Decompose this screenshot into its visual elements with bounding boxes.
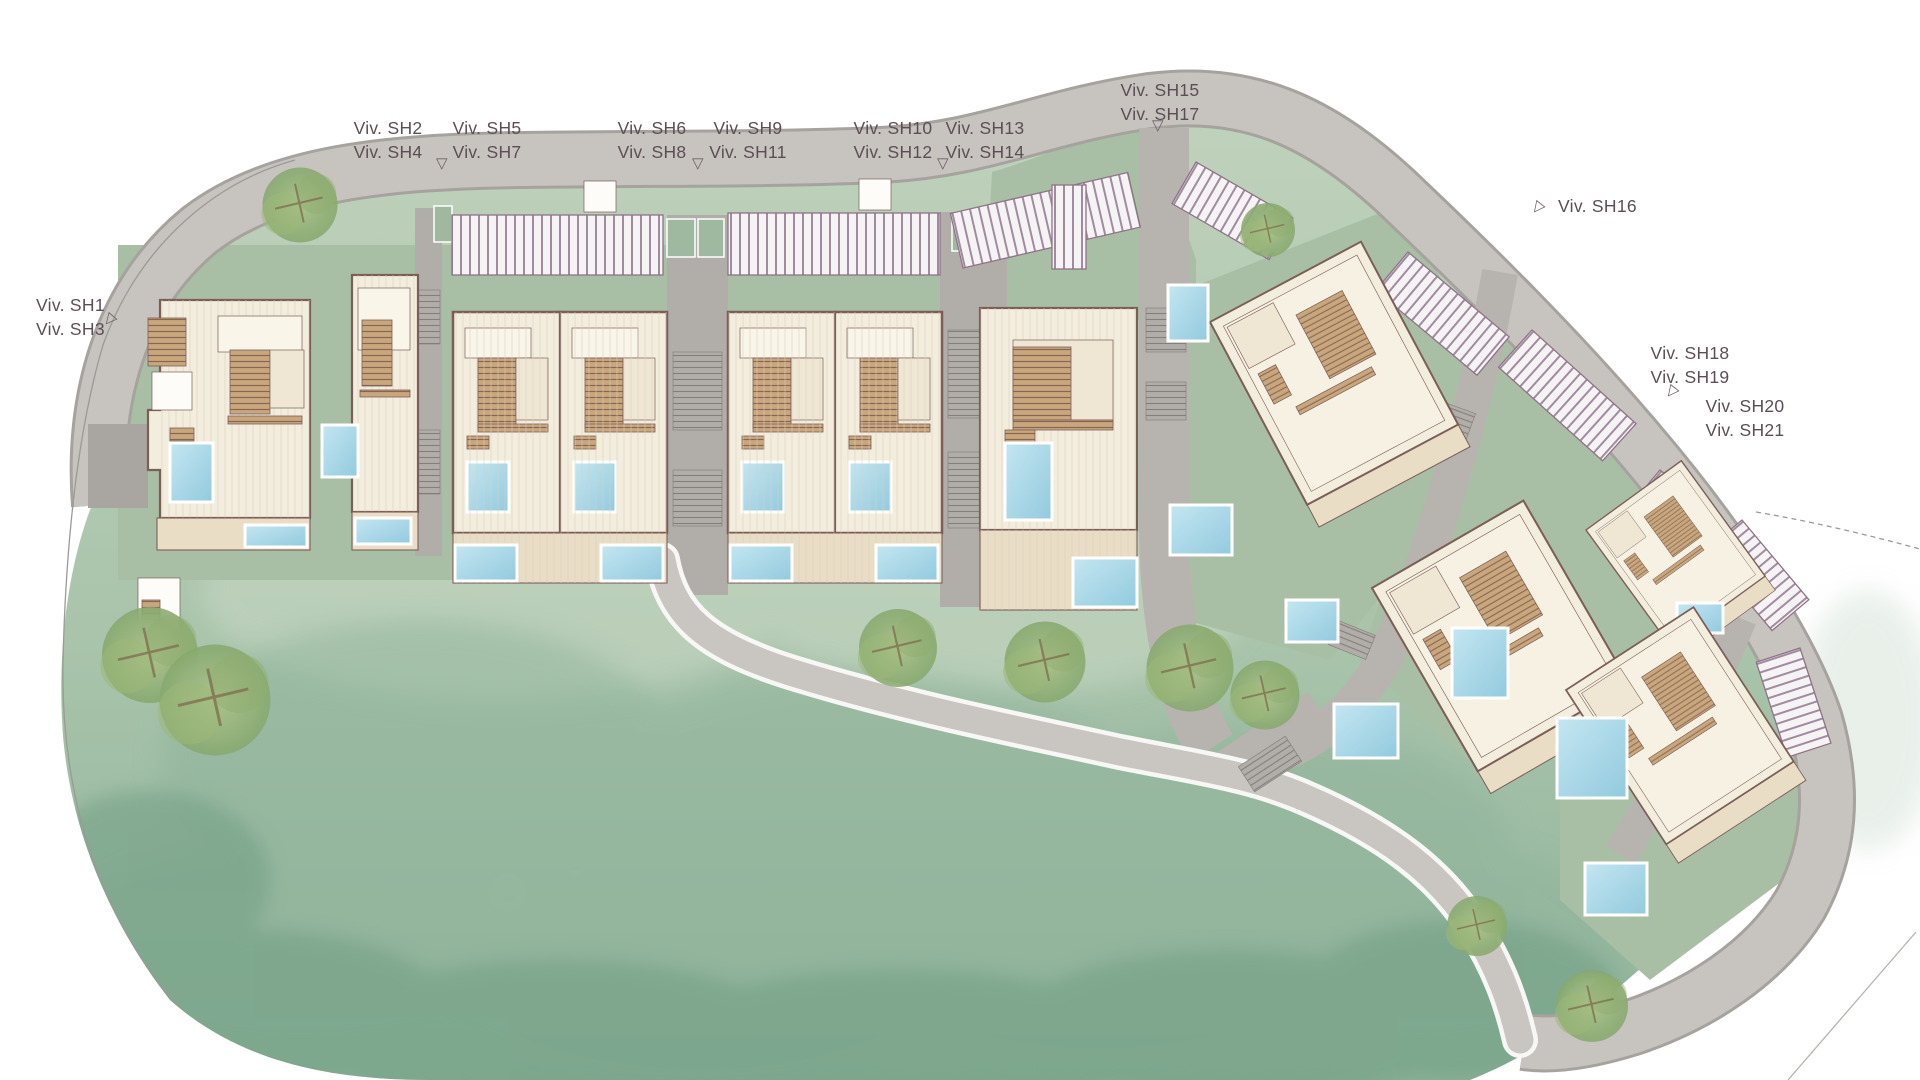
label-line: Viv. SH18 <box>1651 341 1730 365</box>
label-line: Viv. SH5 <box>453 116 522 140</box>
label-viv-sh20-sh21: Viv. SH20 Viv. SH21 <box>1706 394 1785 442</box>
label-line: Viv. SH1 <box>36 293 105 317</box>
unit-marker-icon: ▽ <box>937 156 949 171</box>
label-line: Viv. SH11 <box>709 140 787 164</box>
unit-marker-icon: ▽ <box>692 156 704 171</box>
label-line: Viv. SH21 <box>1706 418 1785 442</box>
label-viv-sh1-sh3: Viv. SH1 Viv. SH3 <box>36 293 105 341</box>
label-viv-sh16: Viv. SH16 <box>1558 194 1637 218</box>
label-line: Viv. SH6 <box>618 116 687 140</box>
label-viv-sh10-sh12: Viv. SH10 Viv. SH12 <box>854 116 933 164</box>
label-viv-sh2-sh4: Viv. SH2 Viv. SH4 <box>354 116 423 164</box>
unit-marker-icon: ▽ <box>436 156 448 171</box>
label-viv-sh13-sh14: Viv. SH13 Viv. SH14 <box>946 116 1025 164</box>
label-line: Viv. SH16 <box>1558 194 1637 218</box>
label-viv-sh6-sh8: Viv. SH6 Viv. SH8 <box>618 116 687 164</box>
label-viv-sh18-sh19: Viv. SH18 Viv. SH19 <box>1651 341 1730 389</box>
site-plan-canvas: Viv. SH1 Viv. SH3 Viv. SH2 Viv. SH4 Viv.… <box>0 0 1920 1080</box>
label-viv-sh5-sh7: Viv. SH5 Viv. SH7 <box>453 116 522 164</box>
label-line: Viv. SH2 <box>354 116 423 140</box>
label-line: Viv. SH4 <box>354 140 423 164</box>
label-line: Viv. SH12 <box>854 140 933 164</box>
label-line: Viv. SH20 <box>1706 394 1785 418</box>
labels-layer: Viv. SH1 Viv. SH3 Viv. SH2 Viv. SH4 Viv.… <box>0 0 1920 1080</box>
label-line: Viv. SH19 <box>1651 365 1730 389</box>
label-line: Viv. SH9 <box>709 116 787 140</box>
label-line: Viv. SH10 <box>854 116 933 140</box>
label-line: Viv. SH13 <box>946 116 1025 140</box>
unit-marker-icon: ▽ <box>1529 198 1547 217</box>
label-line: Viv. SH3 <box>36 317 105 341</box>
label-line: Viv. SH8 <box>618 140 687 164</box>
label-line: Viv. SH15 <box>1121 78 1200 102</box>
label-line: Viv. SH14 <box>946 140 1025 164</box>
label-viv-sh9-sh11: Viv. SH9 Viv. SH11 <box>709 116 787 164</box>
label-line: Viv. SH7 <box>453 140 522 164</box>
unit-marker-icon: ▽ <box>1152 118 1164 133</box>
